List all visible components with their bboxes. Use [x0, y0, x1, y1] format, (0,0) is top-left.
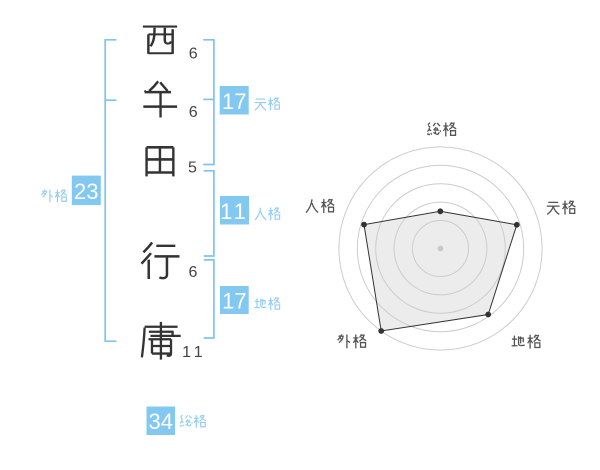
svg-text:6: 6 [189, 264, 198, 281]
svg-text:34: 34 [149, 409, 173, 434]
svg-text:11: 11 [220, 199, 249, 224]
svg-text:17: 17 [222, 289, 246, 314]
svg-text:11: 11 [182, 344, 207, 361]
svg-text:17: 17 [222, 89, 246, 114]
svg-text:6: 6 [189, 104, 198, 121]
svg-text:6: 6 [189, 45, 198, 62]
svg-text:23: 23 [74, 179, 98, 204]
svg-text:5: 5 [188, 160, 197, 177]
